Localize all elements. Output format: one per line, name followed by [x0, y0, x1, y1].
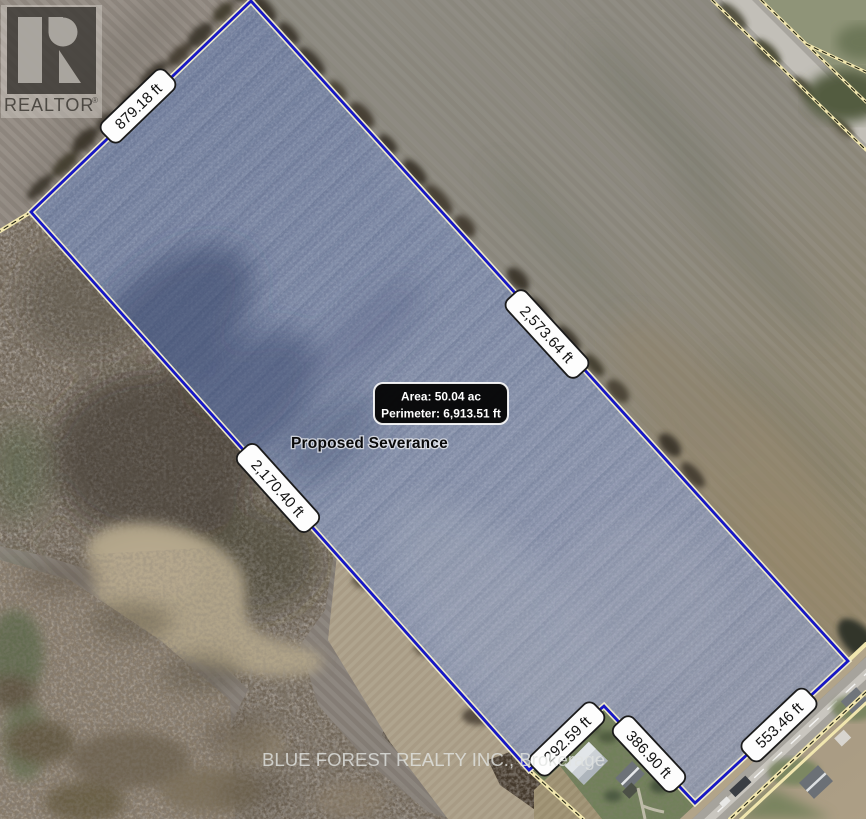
- svg-text:REALTOR: REALTOR: [4, 95, 94, 115]
- svg-text:Perimeter: 6,913.51 ft: Perimeter: 6,913.51 ft: [381, 406, 501, 420]
- svg-text:Area: 50.04 ac: Area: 50.04 ac: [401, 390, 481, 404]
- svg-text:Proposed Severance: Proposed Severance: [291, 435, 448, 452]
- svg-text:BLUE FOREST REALTY INC., Broke: BLUE FOREST REALTY INC., Brokerage: [262, 749, 605, 770]
- svg-text:®: ®: [92, 96, 98, 105]
